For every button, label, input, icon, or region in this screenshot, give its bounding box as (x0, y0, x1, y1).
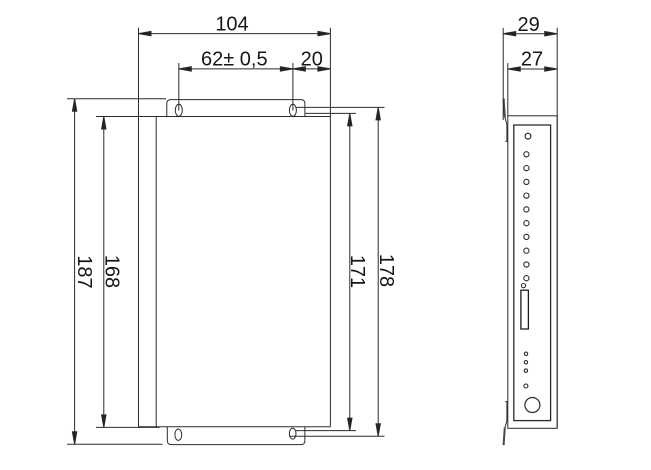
svg-text:29: 29 (517, 14, 539, 36)
svg-text:27: 27 (521, 49, 543, 71)
svg-text:171: 171 (346, 255, 368, 288)
svg-text:168: 168 (101, 255, 123, 288)
svg-text:178: 178 (375, 254, 397, 287)
svg-text:20: 20 (301, 49, 323, 71)
svg-text:104: 104 (215, 14, 248, 36)
svg-text:187: 187 (73, 255, 95, 288)
svg-text:62± 0,5: 62± 0,5 (201, 49, 268, 71)
